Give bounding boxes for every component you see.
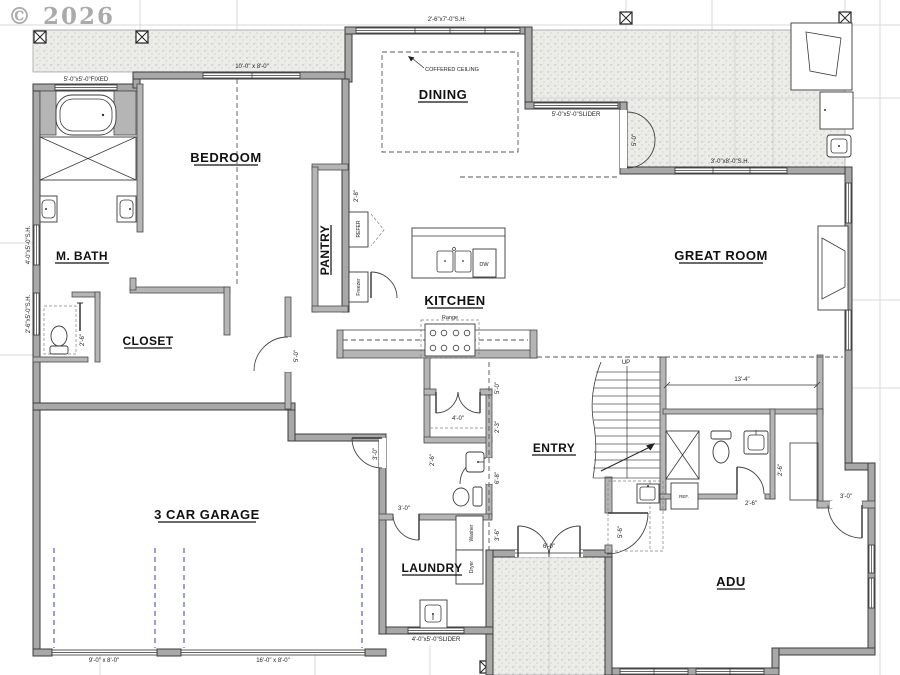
window-great-room	[675, 167, 787, 174]
room-label-dining: DINING	[419, 87, 468, 102]
garage-entry-door	[352, 438, 386, 468]
wall	[605, 477, 612, 513]
adu-kitchenette-door	[607, 513, 648, 554]
wall	[605, 545, 612, 553]
outdoor-grill	[791, 23, 852, 90]
dim-bedroom-window: 10'-0" x 8'-0"	[235, 64, 269, 70]
ref-label: REF.	[679, 494, 689, 499]
window-adu-bottom-2	[696, 668, 764, 675]
outdoor-sink	[827, 135, 851, 157]
wall	[817, 501, 832, 508]
wall	[525, 27, 532, 109]
window-bedroom	[203, 72, 300, 79]
dim-2-6-powder: 2'-6"	[430, 454, 436, 466]
bathtub	[56, 95, 116, 135]
up-label: UP	[622, 360, 630, 366]
dw-label: DW	[479, 262, 489, 268]
dim-2-6-adu-wall: 2'-6"	[778, 464, 784, 476]
floor-plan-sheet: M. BATH BEDROOM CLOSET PANTRY DINING KIT…	[0, 0, 900, 675]
dim-garage-door-2: 16'-0" x 8'-0"	[256, 658, 290, 664]
powder-sink	[466, 452, 484, 472]
garage-door-panel-1	[52, 650, 157, 655]
shower	[40, 137, 136, 180]
wall	[486, 389, 492, 458]
laundry-sink	[420, 600, 447, 628]
wall	[770, 409, 775, 499]
wall	[33, 84, 40, 656]
dim-great-window: 3'-0"x8'-0"S.H.	[711, 159, 750, 165]
wall	[285, 297, 291, 337]
dryer-label: Dryer	[469, 561, 475, 574]
wall	[663, 409, 823, 414]
window-adu-bottom-1	[620, 668, 688, 675]
room-label-adu: ADU	[716, 574, 746, 589]
column-marker	[34, 31, 46, 43]
dim-dining-window: 2'-6"x7'-0"S.H.	[428, 17, 467, 23]
window-dining	[356, 27, 520, 34]
room-label-great-room: GREAT ROOM	[674, 248, 768, 263]
window-adu-right-1	[869, 545, 874, 573]
wall	[424, 358, 430, 440]
range	[425, 324, 475, 356]
wall	[486, 550, 493, 675]
adu-entry-door	[828, 501, 862, 538]
wall	[424, 389, 436, 395]
wall	[342, 79, 349, 312]
dim-left-window-lower: 2'-6"x5'-0"S.H.	[26, 294, 32, 333]
fireplace	[818, 226, 848, 310]
window-right-lower	[846, 310, 851, 350]
wall	[137, 84, 143, 232]
wall	[130, 287, 230, 293]
wall	[337, 330, 343, 358]
dim-laundry-slider: 4'-0"x5'-0"SLIDER	[412, 637, 461, 643]
room-label-bedroom: BEDROOM	[190, 150, 261, 165]
dim-5-0-patio: 5'-0"	[632, 134, 638, 146]
room-label-pantry: PANTRY	[318, 225, 332, 275]
dim-2-6-adu-door: 2'-6"	[745, 501, 757, 507]
room-label-m-bath: M. BATH	[56, 249, 108, 263]
adu-closet	[790, 443, 818, 500]
wall	[33, 357, 88, 362]
wall	[817, 355, 823, 415]
water-closet-toilet	[44, 303, 83, 354]
vanity-sink-right	[117, 196, 136, 222]
dim-3-0-garage: 3'-0"	[373, 448, 379, 460]
dim-6-0: 6'-0"	[543, 544, 555, 550]
refer-label: REFER	[356, 220, 362, 237]
dim-5-0-closet: 5'-0"	[294, 350, 300, 362]
wall	[365, 649, 386, 656]
coffered-leader	[408, 56, 424, 68]
window-right-upper	[846, 183, 851, 223]
wall	[480, 389, 492, 395]
dim-13-4: 13'-4"	[734, 377, 749, 383]
powder-toilet	[453, 487, 482, 506]
outdoor-cabinet	[820, 92, 853, 129]
front-band	[33, 30, 345, 72]
dim-4-0-closet: 4'-0"	[452, 416, 464, 422]
wall	[33, 403, 295, 410]
wall	[379, 514, 393, 520]
wall	[285, 372, 291, 409]
dim-2-8: 2'-8"	[354, 190, 360, 202]
window-left-lower	[34, 293, 39, 335]
wall	[157, 649, 181, 656]
window-fixed	[55, 85, 117, 90]
dim-fixed-window: 5'-0"x5'-0"FIXED	[64, 77, 109, 83]
kitchen-island	[412, 228, 505, 278]
wall	[95, 292, 100, 362]
washer-label: Washer	[469, 524, 475, 541]
room-label-garage: 3 CAR GARAGE	[154, 507, 260, 522]
column-marker	[620, 12, 632, 24]
staircase	[592, 362, 660, 478]
dim-2-3: 2'-3"	[495, 421, 501, 433]
room-label-closet: CLOSET	[122, 334, 173, 348]
dim-5-0-entry: 5'-0"	[495, 382, 501, 394]
stair-direction-arrow	[601, 447, 650, 471]
adu-bath-door	[737, 467, 764, 494]
wall	[424, 437, 492, 443]
front-entry-door	[515, 526, 583, 557]
window-slider-patio	[534, 103, 618, 108]
wall	[312, 306, 348, 312]
wall	[224, 287, 230, 335]
dim-patio-slider: 5'-0"x5'-0"SLIDER	[552, 112, 601, 118]
window-left-upper	[34, 225, 39, 265]
dim-left-window-upper: 4'-0"x5'-0"S.H.	[26, 225, 32, 264]
entry-closet-doors	[430, 392, 486, 428]
wall	[862, 501, 875, 508]
adu-shower	[666, 431, 699, 479]
window-adu-right-2	[869, 578, 874, 608]
garage-door-panel-2	[181, 650, 365, 655]
room-label-kitchen: KITCHEN	[424, 293, 485, 308]
pantry-door	[371, 214, 397, 298]
range-label: Range	[442, 315, 458, 321]
dim-3-0-mud: 3'-0"	[398, 506, 410, 512]
adu-kitchenette	[608, 481, 663, 551]
wall	[772, 648, 875, 655]
adu-bath-sink	[744, 430, 768, 454]
dim-2-6-wc: 2'-6"	[80, 334, 86, 346]
laundry-door	[393, 514, 419, 540]
wall	[605, 550, 612, 675]
room-label-laundry: LAUNDRY	[401, 561, 462, 575]
column-marker	[839, 12, 851, 24]
dim-3-0-adu: 3'-0"	[840, 494, 852, 500]
garage-door-tracks	[54, 548, 362, 648]
window-laundry-slider	[408, 628, 464, 633]
dim-garage-door-1: 9'-0" x 8'-0"	[89, 658, 119, 664]
column-marker	[136, 31, 148, 43]
wall	[530, 330, 537, 358]
closet-door	[254, 337, 291, 372]
copyright-watermark: © 2026	[8, 3, 115, 30]
coffered-label: COFFERED CEILING	[425, 67, 479, 73]
dim-3-6: 3'-6"	[495, 529, 501, 541]
freezer-label: Freezer	[356, 278, 362, 296]
dim-6-8: 6'-8"	[495, 472, 501, 484]
wall	[33, 649, 52, 656]
vanity-sink-left	[40, 196, 57, 222]
adu-toilet	[711, 431, 731, 463]
dim-5-6: 5'-6"	[618, 526, 624, 538]
wall	[130, 278, 136, 290]
room-label-entry: ENTRY	[533, 441, 575, 455]
floor-plan-drawing: M. BATH BEDROOM CLOSET PANTRY DINING KIT…	[0, 0, 900, 675]
wall	[345, 27, 352, 82]
